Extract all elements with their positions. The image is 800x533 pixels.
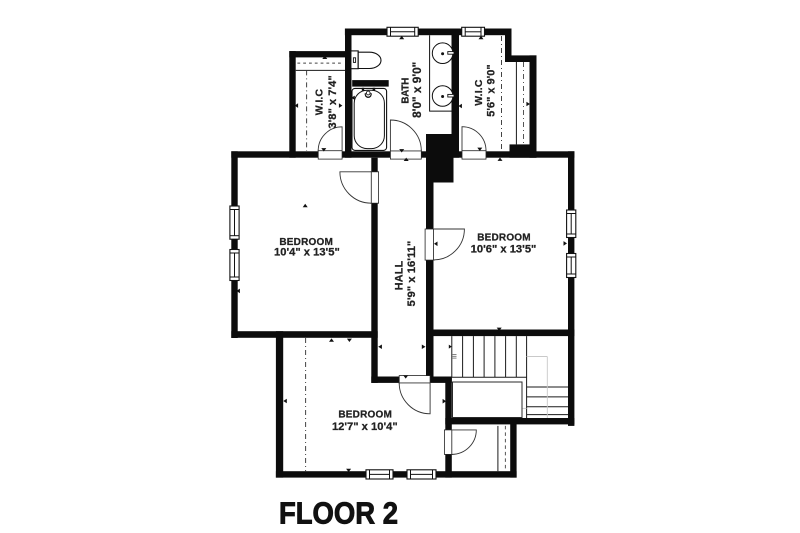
svg-text:BEDROOM: BEDROOM	[477, 233, 531, 244]
svg-text:BEDROOM: BEDROOM	[338, 410, 392, 421]
svg-text:5'9" x 16'11": 5'9" x 16'11"	[406, 241, 418, 307]
svg-text:8'0" x 9'0": 8'0" x 9'0"	[410, 62, 424, 118]
svg-text:3'8" x 7'4": 3'8" x 7'4"	[327, 75, 339, 128]
svg-text:W.I.C: W.I.C	[315, 89, 326, 116]
svg-text:5'6" x 9'0": 5'6" x 9'0"	[486, 64, 498, 116]
svg-text:FLOOR 2: FLOOR 2	[279, 497, 398, 531]
svg-text:12'7" x 10'4": 12'7" x 10'4"	[332, 421, 398, 433]
svg-text:10'4" x 13'5": 10'4" x 13'5"	[274, 247, 340, 259]
svg-text:W.I.C: W.I.C	[474, 79, 485, 106]
svg-text:10'6" x 13'5": 10'6" x 13'5"	[471, 244, 537, 256]
svg-text:HALL: HALL	[393, 260, 405, 290]
